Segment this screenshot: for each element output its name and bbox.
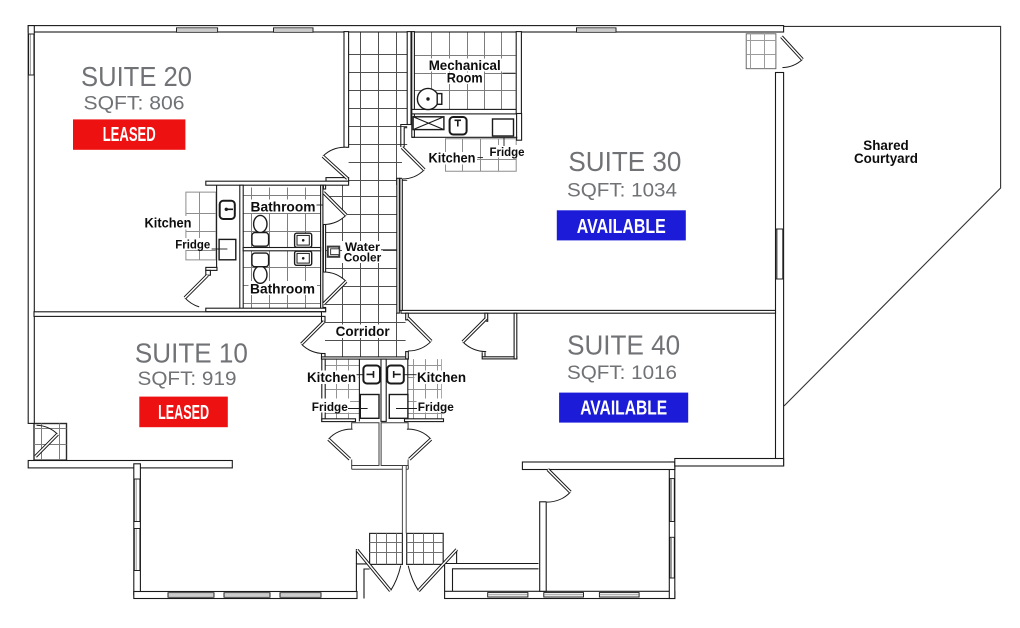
- svg-text:Fridge: Fridge: [312, 400, 348, 414]
- svg-text:LEASED: LEASED: [158, 402, 209, 424]
- svg-text:SUITE 40: SUITE 40: [567, 330, 680, 361]
- svg-text:Fridge: Fridge: [490, 145, 525, 159]
- svg-text:SUITE 30: SUITE 30: [568, 146, 681, 177]
- svg-text:LEASED: LEASED: [103, 124, 156, 146]
- svg-text:SQFT: 1016: SQFT: 1016: [567, 362, 677, 384]
- svg-text:Cooler: Cooler: [344, 253, 382, 265]
- svg-text:Courtyard: Courtyard: [854, 150, 918, 166]
- svg-text:AVAILABLE: AVAILABLE: [577, 216, 666, 238]
- svg-text:Corridor: Corridor: [336, 323, 391, 339]
- svg-text:SQFT: 919: SQFT: 919: [138, 368, 237, 390]
- svg-text:AVAILABLE: AVAILABLE: [580, 398, 667, 420]
- svg-text:Kitchen: Kitchen: [429, 150, 476, 166]
- svg-text:SUITE 20: SUITE 20: [81, 61, 192, 92]
- svg-text:Fridge: Fridge: [175, 238, 210, 252]
- svg-text:Fridge: Fridge: [418, 400, 454, 414]
- svg-text:SQFT: 806: SQFT: 806: [84, 93, 185, 115]
- svg-text:SQFT: 1034: SQFT: 1034: [567, 179, 677, 201]
- svg-text:Bathroom: Bathroom: [250, 280, 315, 296]
- svg-text:Kitchen: Kitchen: [145, 215, 192, 231]
- svg-text:Room: Room: [447, 70, 483, 86]
- svg-text:Kitchen: Kitchen: [417, 369, 466, 385]
- svg-text:SUITE 10: SUITE 10: [135, 337, 248, 368]
- svg-text:Kitchen: Kitchen: [307, 369, 356, 385]
- svg-text:Bathroom: Bathroom: [251, 199, 316, 215]
